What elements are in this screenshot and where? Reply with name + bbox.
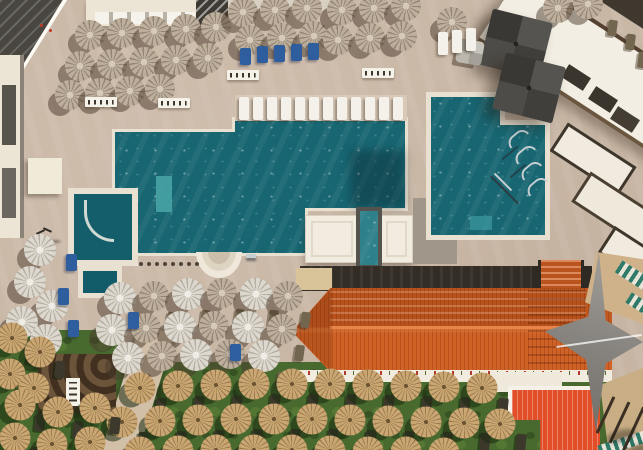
lawn-parasols-left-corner xyxy=(75,427,106,450)
deck-parasols-mid-cluster xyxy=(104,282,136,314)
blue-sunbeds xyxy=(230,344,241,361)
deck-parasols-top-mid xyxy=(355,23,385,53)
poolside-lounger-row xyxy=(337,97,347,120)
deck-parasols-top-left xyxy=(193,43,223,73)
deck-parasols-mid-cluster xyxy=(248,340,280,372)
deck-parasols-top-left xyxy=(65,51,95,81)
lawn-parasols-left-corner xyxy=(80,393,111,424)
dark-tables-top-right xyxy=(607,19,618,36)
lawn-parasols-row-a xyxy=(391,371,422,402)
deck-parasols-top-left xyxy=(115,76,145,106)
blue-sunbeds xyxy=(128,312,139,329)
poolside-lounger-row xyxy=(267,97,277,120)
deck-parasols-mid-cluster xyxy=(112,342,144,374)
lawn-parasols-row-c xyxy=(391,437,422,450)
blue-sunbeds xyxy=(66,254,77,271)
lawn-parasols-row-c xyxy=(239,435,270,450)
lawn-parasols-row-a xyxy=(201,370,232,401)
lawn-parasols-left-corner-lounger xyxy=(109,417,121,435)
white-sunbeds-top xyxy=(466,28,476,51)
lawn-parasols-row-a xyxy=(277,369,308,400)
lawn-parasols-row-a xyxy=(429,372,460,403)
lawn-parasols-row-b xyxy=(449,408,480,439)
poolside-lounger-row xyxy=(351,97,361,120)
deck-parasols-top-mid xyxy=(323,25,353,55)
deck-parasols-top-left xyxy=(171,14,201,44)
lawn-parasols-row-b xyxy=(145,406,176,437)
deck-parasols-top-left xyxy=(97,49,127,79)
lawn-parasols-row-b xyxy=(373,406,404,437)
lawn-parasols-row-a xyxy=(353,370,384,401)
towel-station xyxy=(158,98,190,108)
lawn-parasols-left-corner-lounger xyxy=(54,361,66,379)
deck-jet xyxy=(147,262,151,266)
deck-parasols-mid-cluster xyxy=(240,278,272,310)
lawn-parasols-left-corner xyxy=(0,423,31,450)
deck-parasols-mid-cluster xyxy=(232,311,264,343)
dark-tables-top-right xyxy=(637,51,643,68)
deck-parasols-mid-cluster xyxy=(139,281,169,311)
deck-jet xyxy=(139,262,143,266)
blue-sunbeds xyxy=(257,46,268,63)
deck-jet xyxy=(163,262,167,266)
lawn-parasols-row-b xyxy=(259,404,290,435)
deck-parasols-top-center xyxy=(228,0,258,27)
deck-parasols-top-left xyxy=(129,47,159,77)
lawn-parasols-row-c xyxy=(429,438,460,450)
poolside-lounger-row xyxy=(281,97,291,120)
deck-parasols-mid-cluster xyxy=(207,278,237,308)
dark-tables-top-right xyxy=(625,33,636,50)
lawn-parasols-left-corner xyxy=(5,390,36,421)
lawn-parasols-row-a xyxy=(467,373,498,404)
blue-sunbeds xyxy=(308,43,319,60)
deck-jet xyxy=(195,262,199,266)
deck-parasols-mid-cluster xyxy=(267,314,297,344)
lawn-parasols-row-c xyxy=(201,435,232,450)
lawn-parasols-row-c xyxy=(125,437,156,450)
deck-parasols-top-mid xyxy=(359,0,389,23)
blue-sunbeds xyxy=(291,44,302,61)
lawn-parasols-left-corner xyxy=(37,429,68,450)
deck-parasols-top-left xyxy=(201,12,231,42)
lawn-parasols-row-c xyxy=(315,436,346,450)
lawn-parasols-row-b xyxy=(221,404,252,435)
poolside-lounger-row xyxy=(365,97,375,120)
poolside-lounger-row xyxy=(239,97,249,120)
white-sunbeds-top xyxy=(452,30,462,53)
lawn-parasols-row-b xyxy=(183,405,214,436)
charcoal-square-umbrellas xyxy=(492,52,566,123)
deck-parasols-mid-cluster-lounger xyxy=(294,344,305,361)
poolside-lounger-row xyxy=(323,97,333,120)
deck-jet xyxy=(155,262,159,266)
deck-parasols-top-mid xyxy=(327,0,357,25)
deck-parasols-top-mid xyxy=(387,21,417,51)
generated-objects-layer xyxy=(0,0,643,450)
blue-sunbeds xyxy=(240,48,251,65)
deck-parasols-top-right xyxy=(543,0,573,23)
deck-parasols-left-edge xyxy=(24,234,56,266)
poolside-lounger-row xyxy=(379,97,389,120)
lawn-parasols-row-a xyxy=(125,373,156,404)
lawn-parasols-row-b-lounger xyxy=(515,434,527,450)
lawn-parasols-row-c xyxy=(163,436,194,450)
lawn-parasols-row-b xyxy=(297,404,328,435)
deck-parasols-mid-cluster xyxy=(96,314,128,346)
deck-parasols-top-mid xyxy=(391,0,421,21)
deck-parasols-mid-cluster xyxy=(172,278,204,310)
deck-parasols-top-right xyxy=(573,0,603,19)
lawn-parasols-row-a xyxy=(239,369,270,400)
lawn-parasols-left-corner xyxy=(0,323,28,354)
towel-station xyxy=(227,70,259,80)
deck-parasols-top-center xyxy=(292,0,322,23)
deck-parasols-top-left xyxy=(161,45,191,75)
deck-parasols-top-left xyxy=(55,80,85,110)
lawn-parasols-row-a xyxy=(315,369,346,400)
blue-sunbeds xyxy=(58,288,69,305)
lawn-parasols-left-corner xyxy=(25,337,56,368)
deck-parasols-mid-cluster xyxy=(273,281,303,311)
blue-sunbeds xyxy=(68,320,79,337)
lawn-parasols-row-b xyxy=(335,405,366,436)
towel-station xyxy=(85,97,117,107)
deck-parasols-mid-cluster xyxy=(180,339,212,371)
aerial-resort-photo xyxy=(0,0,643,450)
blue-sunbeds xyxy=(274,45,285,62)
white-sunbeds-top xyxy=(438,32,448,55)
poolside-lounger-row xyxy=(309,97,319,120)
deck-parasols-mid-cluster xyxy=(199,311,229,341)
deck-parasols-top-center xyxy=(260,0,290,25)
towel-station xyxy=(362,68,394,78)
deck-jet xyxy=(187,262,191,266)
poolside-lounger-row xyxy=(295,97,305,120)
deck-parasols-top-left xyxy=(75,20,105,50)
lawn-parasols-row-c xyxy=(277,435,308,450)
deck-parasols-top-left xyxy=(139,16,169,46)
deck-jet xyxy=(171,262,175,266)
deck-parasols-top-left xyxy=(107,18,137,48)
lawn-parasols-row-a xyxy=(163,371,194,402)
poolside-lounger-row xyxy=(253,97,263,120)
deck-parasols-mid-cluster xyxy=(164,311,196,343)
deck-jet xyxy=(179,262,183,266)
lawn-parasols-row-b xyxy=(411,407,442,438)
poolside-lounger-row xyxy=(393,97,403,120)
deck-parasols-mid-cluster-lounger xyxy=(300,311,311,328)
lawn-parasols-left-corner xyxy=(43,397,74,428)
deck-parasols-mid-cluster xyxy=(147,341,177,371)
lawn-parasols-row-b xyxy=(485,409,516,440)
lawn-parasols-row-c xyxy=(353,437,384,450)
